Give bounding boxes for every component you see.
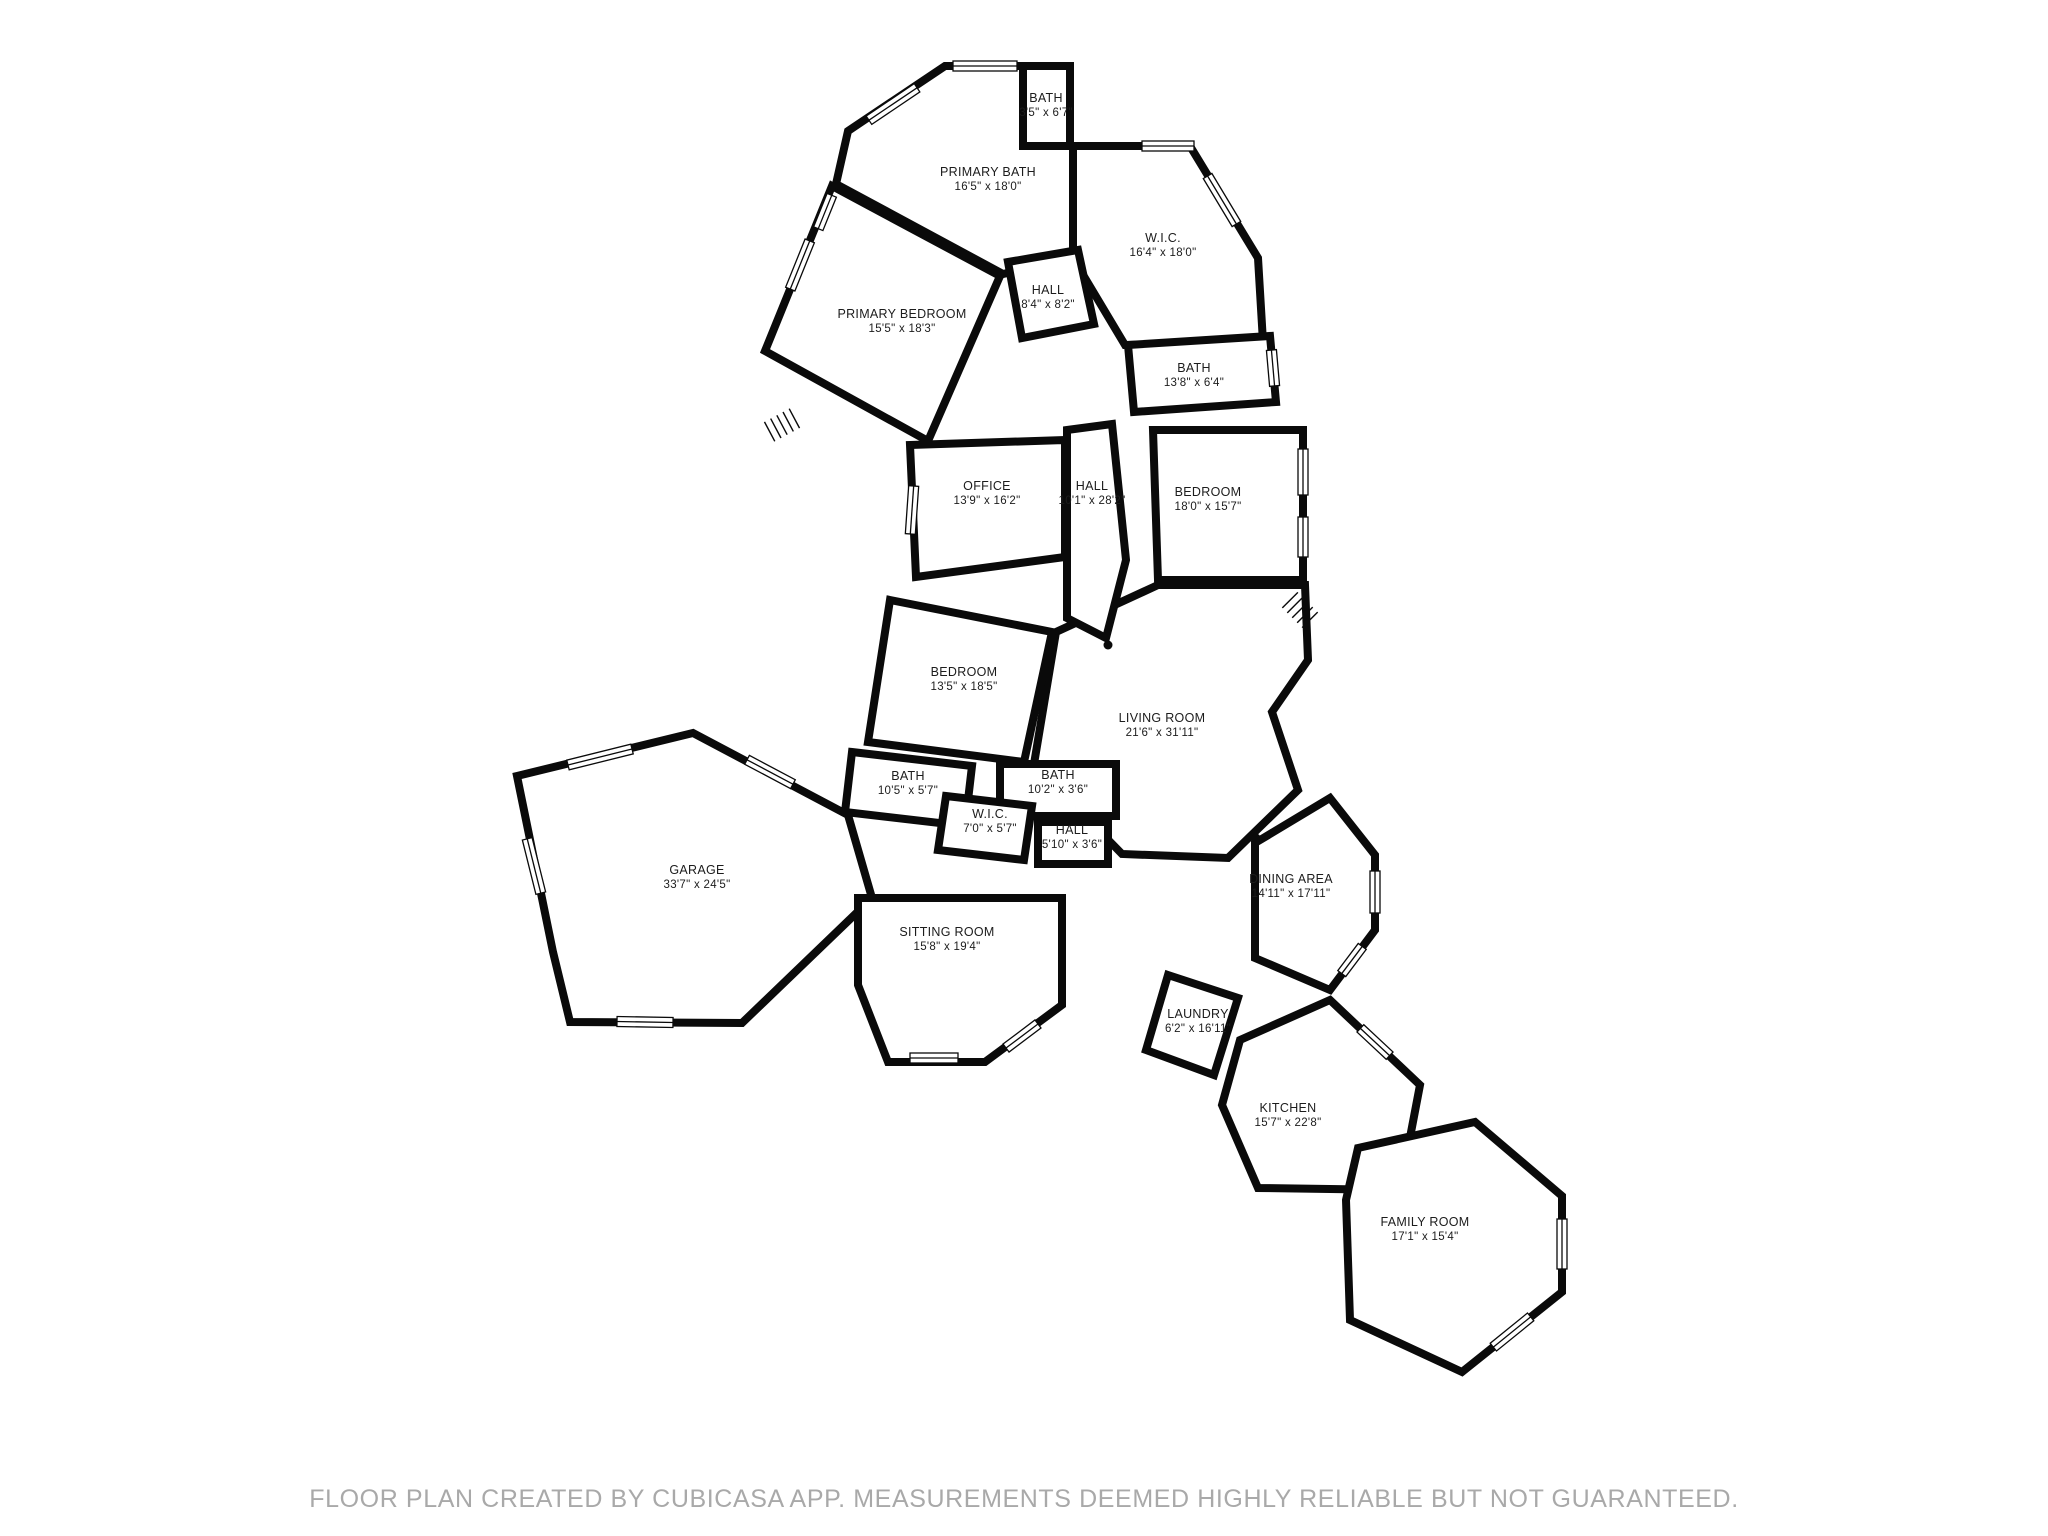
room-name: BATH: [1041, 768, 1075, 782]
room-family-room: [1346, 1122, 1562, 1372]
room-name: BEDROOM: [1175, 485, 1242, 499]
floor-plan-page: GARAGE33'7" x 24'5"SITTING ROOM15'8" x 1…: [0, 0, 2048, 1536]
room-name: LIVING ROOM: [1119, 711, 1206, 725]
window-icon: [953, 61, 1017, 71]
stairs-icon: [764, 409, 799, 442]
room-dimensions: 10'2" x 3'6": [1028, 784, 1088, 796]
plan-dot: [1252, 834, 1261, 843]
room-dimensions: 15'5" x 18'3": [869, 323, 936, 335]
window-icon: [1298, 449, 1308, 495]
room-dimensions: 15'7" x 22'8": [1255, 1117, 1322, 1129]
floor-plan-canvas: GARAGE33'7" x 24'5"SITTING ROOM15'8" x 1…: [0, 0, 2048, 1536]
room-name: HALL: [1032, 283, 1064, 297]
room-dimensions: 7'0" x 5'7": [963, 823, 1017, 835]
footer-disclaimer: FLOOR PLAN CREATED BY CUBICASA APP. MEAS…: [0, 1485, 2048, 1514]
room-dimensions: 3'5" x 6'7": [1019, 107, 1073, 119]
window-icon: [910, 1053, 958, 1063]
room-wic-upper: [1073, 146, 1263, 345]
room-dimensions: 17'1" x 15'4": [1392, 1231, 1459, 1243]
room-dimensions: 5'10" x 3'6": [1042, 839, 1102, 851]
room-dimensions: 6'2" x 16'11": [1165, 1023, 1231, 1035]
window-icon: [1557, 1219, 1567, 1269]
room-name: BATH: [1177, 361, 1211, 375]
room-name: LAUNDRY: [1167, 1007, 1229, 1021]
room-name: DINING AREA: [1249, 872, 1333, 886]
room-hall-long: [1067, 424, 1126, 638]
room-bath-top: [1023, 66, 1070, 146]
room-dimensions: 13'5" x 18'5": [931, 681, 998, 693]
plan-dot: [1104, 641, 1113, 650]
room-dimensions: 33'7" x 24'5": [664, 879, 731, 891]
room-dimensions: 13'9" x 16'2": [954, 495, 1021, 507]
window-icon: [1370, 871, 1380, 913]
room-dimensions: 10'5" x 5'7": [878, 785, 938, 797]
room-name: OFFICE: [963, 479, 1011, 493]
room-dimensions: 14'11" x 17'11": [1252, 888, 1331, 900]
room-name: PRIMARY BATH: [940, 165, 1036, 179]
room-dimensions: 21'6" x 31'11": [1126, 727, 1199, 739]
window-icon: [1142, 141, 1194, 151]
room-name: FAMILY ROOM: [1381, 1215, 1470, 1229]
room-name: KITCHEN: [1260, 1101, 1317, 1115]
room-dimensions: 8'4" x 8'2": [1021, 299, 1075, 311]
room-dimensions: 13'8" x 6'4": [1164, 377, 1224, 389]
room-name: BEDROOM: [931, 665, 998, 679]
room-dimensions: 16'4" x 18'0": [1130, 247, 1197, 259]
room-name: BATH: [1029, 91, 1063, 105]
window-icon: [1298, 517, 1308, 557]
room-dimensions: 10'1" x 28'2": [1059, 495, 1126, 507]
room-garage: [517, 733, 872, 1023]
room-dimensions: 16'5" x 18'0": [955, 181, 1022, 193]
room-name: BATH: [891, 769, 925, 783]
room-sitting-room: [858, 898, 1062, 1062]
room-name: HALL: [1056, 823, 1088, 837]
window-icon: [617, 1017, 673, 1028]
room-name: SITTING ROOM: [899, 925, 994, 939]
room-name: W.I.C.: [972, 807, 1008, 821]
room-dimensions: 18'0" x 15'7": [1175, 501, 1242, 513]
room-name: GARAGE: [669, 863, 724, 877]
room-dimensions: 15'8" x 19'4": [914, 941, 981, 953]
room-office: [910, 440, 1065, 577]
room-name: HALL: [1076, 479, 1108, 493]
room-name: W.I.C.: [1145, 231, 1181, 245]
room-name: PRIMARY BEDROOM: [837, 307, 966, 321]
